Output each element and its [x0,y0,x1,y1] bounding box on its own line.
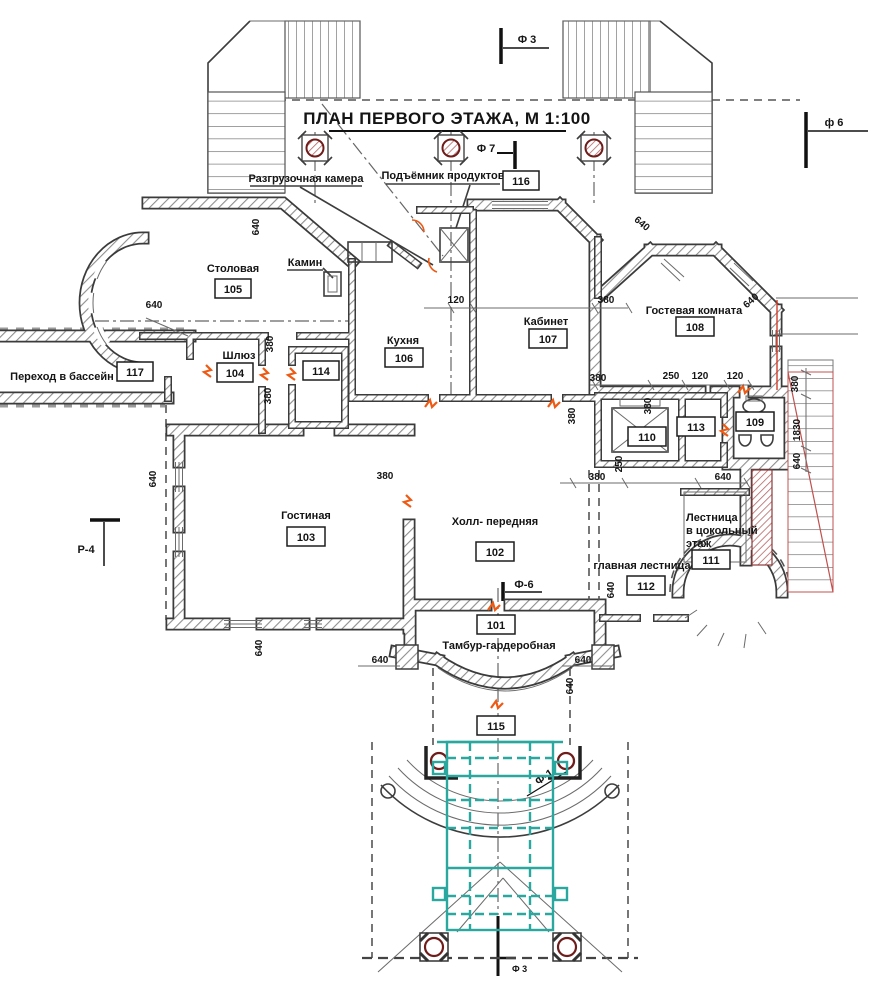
marker-f3-top-label: Ф 3 [518,34,537,46]
dim: 380 [589,472,606,483]
dim: 640 [254,639,265,656]
marker-f7-label: Ф 7 [477,143,496,155]
room-airlock-label: Шлюз [223,350,256,362]
room-basement-stair-label2: в цокольный [686,525,758,537]
dim: 640 [632,215,652,234]
room-basement-stair-label1: Лестница [686,512,738,524]
dim: 640 [575,655,592,666]
marker-f3-bottom-label: Ф 3 [512,964,527,974]
marker-f7: Ф 7 [477,141,515,169]
room-pool-passage-label: Переход в бассейн [10,371,114,383]
room-study-number: 107 [539,334,557,346]
marker-r4: Р-4 [77,520,120,566]
marker-f3-bottom: Ф 3 [498,916,527,976]
room-116-number: 116 [512,176,530,188]
dim: 640 [565,677,576,694]
room-basement-stair-number: 111 [702,555,719,567]
plan-title: ПЛАН ПЕРВОГО ЭТАЖА, М 1:100 [303,109,590,128]
dim: 250 [614,455,625,472]
terrace-column-icon [420,933,448,961]
dim: 380 [590,373,607,384]
dim: 250 [663,371,680,382]
dim: 380 [598,295,615,306]
room-main-stair-number: 112 [637,581,655,593]
marker-f6-top-label: ф 6 [825,117,844,129]
room-hall-label: Холл- передняя [452,516,538,528]
dim: 380 [265,335,276,352]
column-icon [298,131,332,165]
room-kitchen-label: Кухня [387,335,419,347]
room-basement-stair-label3: этаж [686,538,711,550]
top-left-stair-tower [208,21,360,193]
top-right-stair-tower [563,21,712,193]
room-main-stair-label: главная лестница [593,560,691,572]
room-kitchen-number: 106 [395,353,413,365]
dim: 640 [715,472,732,483]
floor-plan-page: ПЛАН ПЕРВОГО ЭТАЖА, М 1:100 Ф 3 [0,0,870,990]
marker-f3-top: Ф 3 [501,28,549,64]
dim: 380 [263,387,274,404]
room-vestibule-number: 101 [487,620,505,632]
floor-plan-drawing: ПЛАН ПЕРВОГО ЭТАЖА, М 1:100 Ф 3 [0,0,870,990]
room-dining-label: Столовая [207,263,259,275]
room-elevator-number: 110 [638,432,656,444]
room-pool-passage-number: 117 [126,367,144,379]
terrace-column-icon [553,933,581,961]
room-living-label: Гостиная [281,510,331,522]
food-lift-label: Подъёмник продуктов [382,170,505,182]
column-symbols [298,131,611,165]
room-hall-number: 102 [486,547,504,559]
marker-f6-mid-label: Ф-6 [514,579,533,591]
room-vestibule-label: Тамбур-гардеробная [442,640,555,652]
dim: 640 [792,452,803,469]
bottom-terrace [362,645,638,972]
dim: 640 [372,655,389,666]
dim: 640 [148,470,159,487]
unloading-label: Разгрузочная камера [248,173,364,185]
dim: 120 [448,295,465,306]
dim: 120 [727,371,744,382]
dim: 1830 [792,418,803,441]
dim: 380 [790,375,801,392]
dim: 640 [251,218,262,235]
room-guest-number: 108 [686,322,704,334]
dim: 120 [692,371,709,382]
dim: 380 [377,471,394,482]
column-icon [577,131,611,165]
marker-r4-label: Р-4 [77,544,95,556]
marker-f6-mid: Ф-6 [503,579,542,601]
room-living-number: 103 [297,532,315,544]
room-wc-number: 109 [746,417,764,429]
marker-f6-top: ф 6 [806,112,868,168]
room-airlock-number: 104 [226,368,245,380]
room-porch-number: 115 [487,721,505,733]
red-hatched-wall [752,470,772,565]
dim: 380 [567,407,578,424]
room-113-number: 113 [687,422,705,434]
room-guest-label: Гостевая комната [646,305,743,317]
column-icon [434,131,468,165]
fireplace-label: Камин [288,257,323,269]
dim: 380 [643,397,654,414]
room-study-label: Кабинет [524,316,569,328]
room-dining-number: 105 [224,284,242,296]
room-114-number: 114 [312,366,331,378]
dim: 640 [146,300,163,311]
dim: 640 [606,581,617,598]
